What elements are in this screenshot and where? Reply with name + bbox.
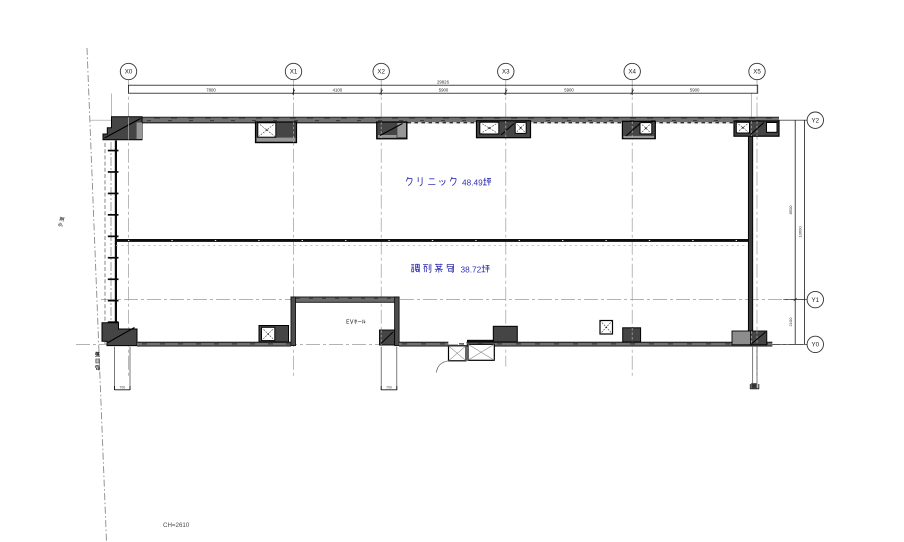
svg-text:4100: 4100 (333, 88, 343, 93)
svg-text:5900: 5900 (564, 88, 574, 93)
svg-text:Y0: Y0 (812, 342, 820, 349)
svg-text:29826: 29826 (437, 79, 450, 84)
svg-text:X1: X1 (290, 69, 298, 76)
svg-text:X2: X2 (377, 69, 385, 76)
svg-text:X0: X0 (125, 69, 133, 76)
svg-text:7800: 7800 (206, 88, 216, 93)
svg-text:700: 700 (386, 385, 392, 389)
svg-text:8500: 8500 (788, 205, 793, 215)
svg-text:X5: X5 (753, 69, 761, 76)
svg-text:X3: X3 (502, 69, 510, 76)
svg-text:48.49: 48.49 (462, 178, 483, 188)
svg-text:X4: X4 (628, 69, 636, 76)
svg-text:CH=2610: CH=2610 (163, 522, 190, 529)
svg-text:10600: 10600 (798, 226, 803, 238)
svg-text:Y2: Y2 (812, 117, 820, 124)
svg-text:700: 700 (119, 385, 125, 389)
svg-text:38.72: 38.72 (461, 265, 482, 275)
svg-text:2100: 2100 (788, 317, 793, 327)
svg-text:5900: 5900 (439, 88, 449, 93)
svg-text:Y1: Y1 (812, 297, 820, 304)
svg-text:5900: 5900 (690, 88, 700, 93)
